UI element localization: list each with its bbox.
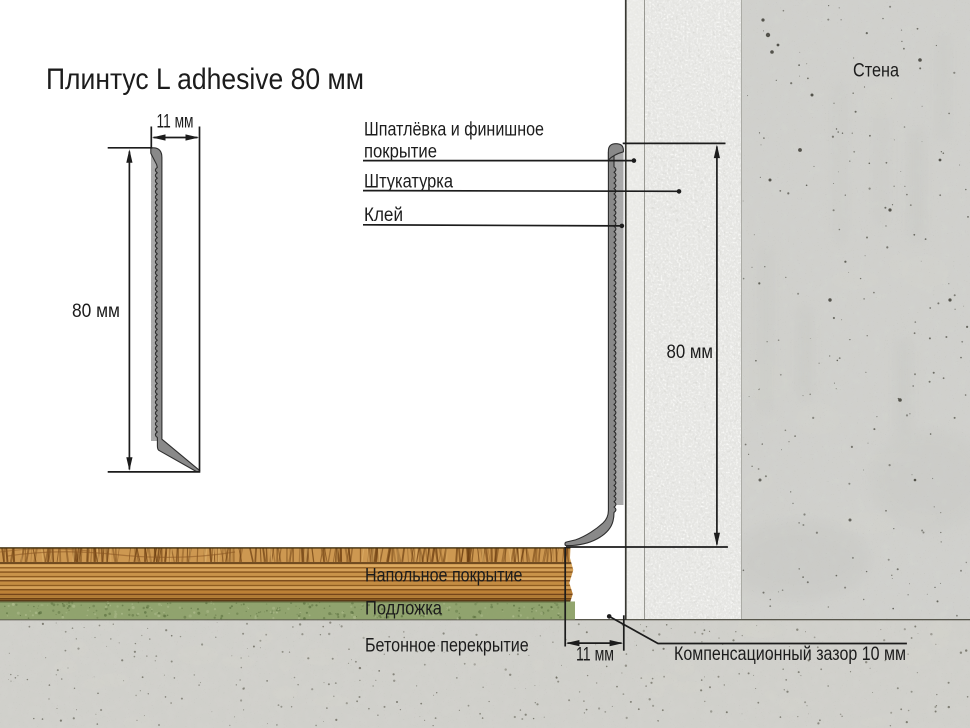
svg-text:Плинтус L adhesive 80 мм: Плинтус L adhesive 80 мм [46, 63, 364, 96]
svg-text:Подложка: Подложка [365, 599, 442, 620]
svg-text:11 мм: 11 мм [157, 112, 194, 133]
svg-text:Штукатурка: Штукатурка [364, 171, 453, 192]
svg-text:Компенсационный зазор 10 мм: Компенсационный зазор 10 мм [674, 644, 906, 665]
svg-text:Бетонное перекрытие: Бетонное перекрытие [365, 636, 529, 657]
svg-text:80 мм: 80 мм [667, 342, 714, 363]
svg-text:Напольное покрытие: Напольное покрытие [365, 566, 523, 587]
svg-text:покрытие: покрытие [364, 142, 437, 163]
svg-text:Клей: Клей [364, 205, 403, 226]
svg-text:Стена: Стена [853, 61, 899, 82]
svg-text:11 мм: 11 мм [576, 645, 614, 666]
svg-text:Шпатлёвка и финишное: Шпатлёвка и финишное [364, 120, 544, 141]
svg-text:80 мм: 80 мм [72, 301, 120, 322]
